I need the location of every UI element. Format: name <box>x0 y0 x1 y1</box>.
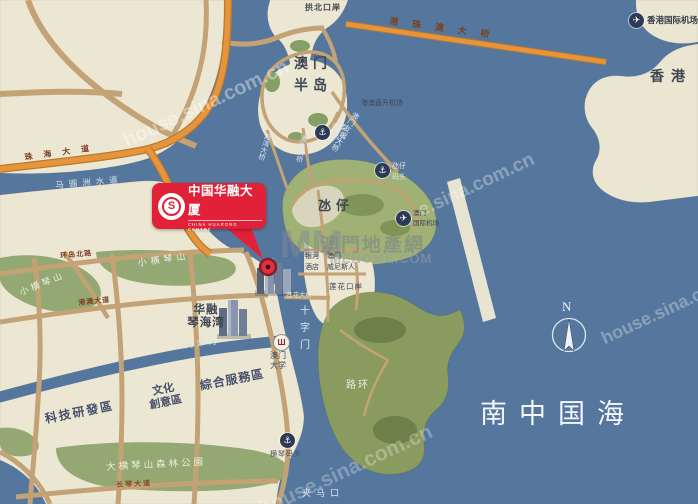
coloane-hill <box>373 416 417 444</box>
university-glyph: Ш <box>277 335 285 350</box>
label-jiamakou: 夹马口 <box>302 488 344 498</box>
label-line: 港澳 <box>332 123 346 132</box>
label-line: 华融 <box>184 304 228 317</box>
label-south-china-sea: 南中国海 <box>480 399 636 430</box>
green-patch <box>290 40 310 52</box>
label-gongbei-port: 拱北口岸 <box>305 3 341 12</box>
callout-subtitle: CHINA HUARONG CENTRE <box>188 220 262 233</box>
label-line: 澳门 <box>294 52 332 74</box>
label-macau-airport: 澳门 国际机场 <box>413 209 439 229</box>
label-line: 银河 <box>305 251 319 262</box>
anchor-glyph: ⚓ <box>283 433 291 448</box>
plane-glyph: ✈ <box>633 13 641 28</box>
label-line: 氹仔 <box>392 161 406 172</box>
label-line: 码头 <box>392 172 406 183</box>
label-line: 澳门 <box>327 251 355 262</box>
huarong-callout: S 中国华融大厦 CHINA HUARONG CENTRE <box>152 183 266 229</box>
hkmacau-ferry-icon: ⚓ <box>315 125 330 140</box>
anchor-glyph: ⚓ <box>318 125 326 140</box>
coloane-hill <box>354 317 406 343</box>
hk-airport-icon: ✈ <box>629 13 644 28</box>
huarong-logo: S <box>158 193 185 220</box>
label-coloane: 路环 <box>346 380 370 392</box>
label-taipa-ferry: 氹仔 码头 <box>392 161 406 183</box>
compass-icon <box>548 316 592 362</box>
university-icon: Ш <box>274 335 289 350</box>
compass-north-label: N <box>562 300 571 315</box>
hengqin-ferry-icon: ⚓ <box>280 433 295 448</box>
label-taipa: 氹仔 <box>318 199 354 214</box>
label-hengqin-ferry: 横琴码头 <box>270 451 302 459</box>
label-line: 酒店 <box>305 262 319 273</box>
plane-glyph: ✈ <box>400 211 408 226</box>
huarong-logo-letter: S <box>162 197 181 216</box>
macau-airport-icon: ✈ <box>396 211 411 226</box>
label-venetian: 澳门 威尼斯人 <box>327 251 355 273</box>
label-line: 澳门 <box>270 351 286 361</box>
label-hk-airport: 香港国际机场 <box>647 16 698 26</box>
label-line: 码头 <box>332 132 346 141</box>
label-hkmacau-ferry: 港澳 码头 <box>332 123 346 141</box>
label-line: 威尼斯人 <box>327 262 355 273</box>
label-line: 琴海湾 <box>184 317 228 330</box>
label-heliport: 港澳直升机场 <box>361 100 403 108</box>
label-lianhua-bridge: 莲花大桥 <box>286 292 312 299</box>
map-canvas: house.sina.com.cn e.sina.com.cn house.si… <box>0 0 698 504</box>
label-hongkong: 香港 <box>650 68 692 84</box>
label-shizimen: 十字门 <box>297 305 309 356</box>
taipa-ferry-icon: ⚓ <box>375 163 390 178</box>
callout-title: 中国华融大厦 <box>188 180 262 218</box>
label-lianhua-port: 莲花口岸 <box>329 283 363 292</box>
label-um: 澳门 大学 <box>270 351 286 371</box>
label-line: 澳门 <box>413 209 439 219</box>
label-line: 大学 <box>270 361 286 371</box>
anchor-glyph: ⚓ <box>378 163 386 178</box>
label-macau-peninsula: 澳门 半岛 <box>294 52 332 96</box>
label-line: 半岛 <box>294 74 332 96</box>
label-line: 国际机场 <box>413 219 439 229</box>
label-huarong-bay: 华融 琴海湾 <box>184 304 228 330</box>
label-galaxy-hotel: 银河 酒店 <box>305 251 319 273</box>
